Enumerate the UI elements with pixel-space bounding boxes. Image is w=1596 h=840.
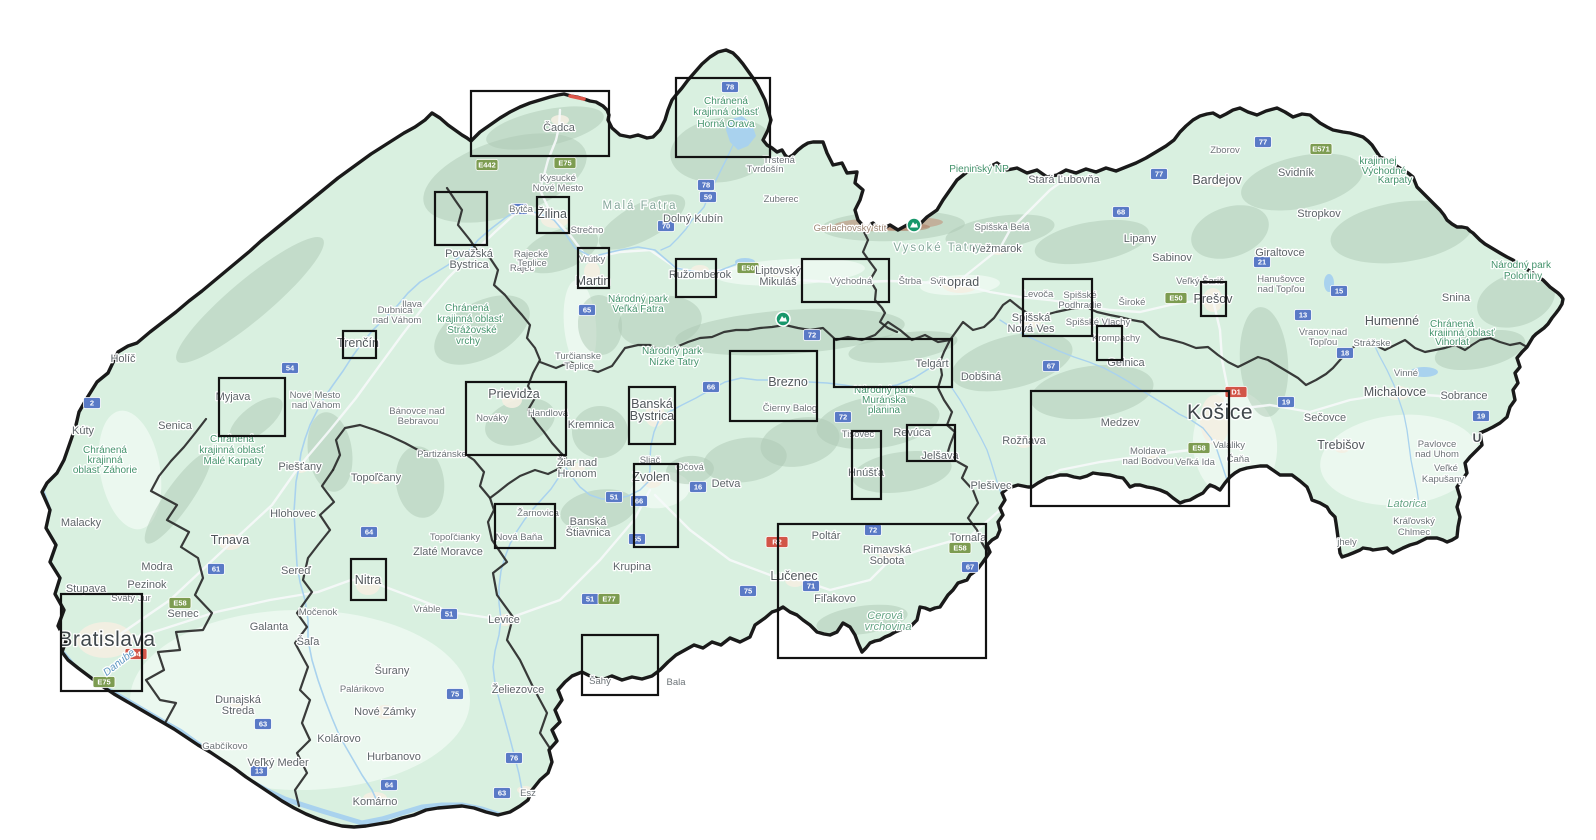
map-label: Senec: [167, 608, 199, 620]
map-label: Štiavnica: [566, 526, 612, 539]
map-label: Východná: [830, 276, 873, 287]
mountain-peak-icon: [907, 218, 921, 232]
svg-text:21: 21: [1258, 258, 1266, 267]
map-label: Plešivec: [971, 480, 1012, 492]
svg-text:51: 51: [610, 493, 618, 502]
map-label: Žilina: [537, 206, 567, 221]
map-label: Karpaty: [1378, 175, 1412, 186]
route-shield-64: 64: [381, 780, 398, 791]
map-label: Veľký Meder: [247, 757, 309, 769]
route-shield-18: 18: [1337, 348, 1354, 359]
map-label: Podhradie: [1058, 300, 1101, 311]
route-shield-77: 77: [1255, 137, 1272, 148]
route-shield-51: 51: [441, 609, 458, 620]
map-label: Malá Fatra: [603, 200, 678, 212]
map-label: Telgárt: [915, 358, 948, 370]
svg-text:19: 19: [1282, 398, 1290, 407]
map-label: Levice: [488, 614, 520, 626]
map-label: Rožňava: [1002, 435, 1046, 447]
map-label: Detva: [712, 478, 742, 490]
map-label: Partizánske: [417, 449, 467, 460]
route-shield-78: 78: [722, 82, 739, 93]
svg-text:63: 63: [498, 789, 506, 798]
mountain-peak-icon: [776, 312, 790, 326]
svg-text:67: 67: [1047, 362, 1055, 371]
map-label: Michalovce: [1364, 385, 1427, 399]
svg-text:E571: E571: [1312, 145, 1330, 154]
route-shield-63: 63: [255, 719, 272, 730]
map-label: Vihorlat: [1435, 337, 1469, 348]
map-label: Kolárovo: [317, 733, 360, 745]
map-label: Bardejov: [1192, 173, 1242, 187]
svg-text:71: 71: [807, 582, 815, 591]
svg-text:E50: E50: [1169, 294, 1182, 303]
svg-text:E58: E58: [953, 544, 966, 553]
route-shield-19: 19: [1278, 397, 1295, 408]
map-label: Hlohovec: [270, 508, 316, 520]
map-label: Sereď: [281, 565, 311, 577]
map-label: Snina: [1442, 292, 1471, 304]
route-shield-75: 75: [447, 689, 464, 700]
svg-text:15: 15: [1335, 287, 1343, 296]
route-shield-E75: E75: [93, 677, 115, 688]
route-shield-E50: E50: [1165, 293, 1187, 304]
map-label: Trebišov: [1317, 438, 1365, 452]
map-label: Čierny Balog: [763, 403, 817, 414]
map-label: Revúca: [893, 427, 931, 439]
map-label: Chránená: [704, 96, 748, 107]
map-label: Horná Orava: [697, 119, 755, 130]
map-label: Modra: [141, 561, 173, 573]
map-label: Tornaľa: [950, 532, 988, 544]
map-label: Lipany: [1124, 233, 1157, 245]
map-label: Bytča: [509, 204, 533, 215]
map-label: Močenok: [299, 607, 338, 618]
route-shield-59: 59: [700, 192, 717, 203]
map-label: Zlaté Moravce: [413, 546, 483, 558]
map-label: Pieninský NP: [949, 164, 1009, 175]
route-shield-61: 61: [208, 564, 225, 575]
map-label: Zvolen: [632, 470, 670, 484]
route-shield-66: 66: [703, 382, 720, 393]
svg-text:59: 59: [704, 193, 712, 202]
map-label: Čaňa: [1227, 454, 1250, 465]
map-label: Esz: [520, 788, 536, 799]
map-label: Krupina: [613, 561, 652, 573]
svg-text:64: 64: [385, 781, 394, 790]
map-label: nad Bodvou: [1123, 456, 1174, 467]
map-label: Národný park: [1491, 260, 1552, 271]
route-shield-76: 76: [506, 753, 523, 764]
map-label: Zborov: [1210, 145, 1240, 156]
map-label: Prešov: [1194, 292, 1234, 306]
route-shield-E571: E571: [1310, 144, 1332, 155]
map-label: krajinná oblasť: [199, 445, 265, 456]
route-shield-54: 54: [282, 363, 299, 374]
map-label: planina: [868, 405, 901, 416]
svg-text:72: 72: [869, 526, 877, 535]
map-label: Stará Ľubovňa: [1028, 174, 1100, 186]
map-label: Bala: [666, 677, 686, 688]
route-shield-2: 2: [84, 398, 101, 409]
map-label: Želiezovce: [492, 683, 545, 696]
map-label: Ružomberok: [669, 269, 732, 281]
svg-text:61: 61: [212, 565, 220, 574]
svg-text:E75: E75: [558, 159, 571, 168]
route-shield-E58: E58: [949, 543, 971, 554]
map-label: Strážovské: [447, 325, 497, 336]
route-shield-E442: E442: [476, 160, 498, 171]
svg-text:51: 51: [586, 595, 594, 604]
map-label: Topoľčianky: [430, 532, 481, 543]
map-label: Chlmec: [1398, 527, 1430, 538]
map-label: vrchovina: [864, 621, 911, 633]
route-shield-72: 72: [804, 330, 821, 341]
svg-text:E75: E75: [97, 678, 110, 687]
svg-text:66: 66: [635, 497, 643, 506]
svg-text:2: 2: [90, 399, 94, 408]
map-label: U: [1473, 431, 1482, 445]
map-label: Hurbanovo: [367, 751, 421, 763]
map-label: Giraltovce: [1255, 247, 1305, 259]
map-label: Bebravou: [398, 416, 439, 427]
map-label: Poltár: [812, 530, 841, 542]
svg-text:51: 51: [445, 610, 453, 619]
map-label: Dolný Kubín: [663, 213, 723, 225]
map-label: Žarnovica: [517, 508, 559, 519]
map-label: Dobšiná: [961, 371, 1002, 383]
svg-text:63: 63: [259, 720, 267, 729]
map-label: Svit: [930, 276, 946, 287]
map-label: krajinná oblasť: [693, 107, 759, 118]
map-label: Teplice: [517, 258, 547, 269]
map-label: Piešťany: [278, 461, 322, 473]
svg-text:13: 13: [1299, 311, 1307, 320]
map-label: Hnúšťa: [848, 467, 885, 479]
svg-text:68: 68: [1117, 208, 1125, 217]
map-label: Prievidza: [488, 387, 539, 401]
map-label: Nová Baňa: [495, 532, 543, 543]
svg-text:E58: E58: [173, 599, 186, 608]
route-shield-51: 51: [606, 492, 623, 503]
map-label: nad Topľou: [1258, 284, 1305, 295]
svg-text:66: 66: [707, 383, 715, 392]
map-label: Národný park: [642, 346, 703, 357]
map-label: Martin: [576, 274, 611, 288]
route-shield-64: 64: [361, 527, 378, 538]
map-label: jhely: [1336, 537, 1357, 548]
map-label: Komárno: [353, 796, 398, 808]
map-label: Latorica: [1387, 498, 1426, 510]
map-label: Spišská Belá: [975, 222, 1031, 233]
map-label: Očová: [676, 462, 704, 473]
route-shield-E77: E77: [598, 594, 620, 605]
map-label: Sečovce: [1304, 412, 1346, 424]
map-label: Palárikovo: [340, 684, 384, 695]
map-label: Brezno: [768, 375, 808, 389]
map-label: Kapušany: [1422, 474, 1465, 485]
map-label: Veľká Ida: [1175, 457, 1215, 468]
slovakia-overview-map[interactable]: 6161546426313757664637878597072667266555…: [0, 0, 1596, 840]
map-label: krajinná oblasť: [437, 314, 503, 325]
route-shield-16: 16: [690, 482, 707, 493]
svg-text:64: 64: [365, 528, 374, 537]
map-label: Vráble: [413, 604, 440, 615]
map-label: Stropkov: [1297, 208, 1341, 220]
route-shield-77: 77: [1151, 169, 1168, 180]
svg-text:76: 76: [510, 754, 518, 763]
map-label: Košice: [1187, 401, 1253, 424]
route-shield-72: 72: [835, 412, 852, 423]
map-label: Veľká Fatra: [612, 304, 664, 315]
map-label: Sabinov: [1152, 252, 1192, 264]
map-label: Nové Mesto: [533, 183, 584, 194]
map-label: oblasť Záhorie: [73, 465, 138, 476]
map-label: Topoľčany: [351, 472, 402, 484]
map-label: Šaľa: [297, 635, 321, 648]
svg-text:E442: E442: [478, 161, 496, 170]
map-label: Vysoké Tatry: [893, 242, 982, 254]
map-label: Vinné: [1394, 368, 1418, 379]
route-shield-51: 51: [582, 594, 599, 605]
map-label: Levoča: [1023, 289, 1054, 300]
map-label: Topľou: [1309, 337, 1338, 348]
map-label: Kremnica: [568, 419, 615, 431]
map-label: Krompachy: [1092, 333, 1140, 344]
map-label: Bystrica: [630, 409, 675, 423]
map-label: Medzev: [1101, 417, 1140, 429]
route-shield-68: 68: [1113, 207, 1130, 218]
route-shield-E58: E58: [1188, 443, 1210, 454]
map-label: Šahy: [589, 676, 611, 687]
map-label: Myjava: [216, 391, 252, 403]
map-label: Svidník: [1278, 167, 1315, 179]
map-label: Holíč: [110, 353, 136, 365]
map-label: Sobota: [870, 555, 906, 567]
svg-text:75: 75: [451, 690, 459, 699]
map-label: Humenné: [1365, 314, 1419, 328]
map-label: Senica: [158, 420, 193, 432]
map-label: Strážske: [1354, 338, 1391, 349]
svg-text:19: 19: [1477, 412, 1485, 421]
map-label: Nové Zámky: [354, 706, 416, 718]
route-shield-65: 65: [579, 305, 596, 316]
map-label: Hronom: [557, 468, 596, 480]
map-label: Čadca: [543, 121, 576, 134]
map-label: Sobrance: [1440, 390, 1487, 402]
map-label: vrchy: [456, 336, 480, 347]
map-label: Zuberec: [764, 194, 799, 205]
map-label: Streda: [222, 705, 255, 717]
svg-text:E58: E58: [1192, 444, 1205, 453]
svg-text:78: 78: [702, 181, 710, 190]
svg-text:D1: D1: [1231, 388, 1241, 397]
route-shield-67: 67: [1043, 361, 1060, 372]
map-label: Nováky: [476, 413, 508, 424]
map-label: Šurany: [375, 664, 410, 677]
svg-text:75: 75: [744, 587, 752, 596]
map-label: Mikuláš: [759, 276, 797, 288]
route-shield-13: 13: [1295, 310, 1312, 321]
svg-text:E77: E77: [602, 595, 615, 604]
map-label: Gabčíkovo: [202, 741, 247, 752]
map-canvas[interactable]: 6161546426313757664637878597072667266555…: [0, 0, 1596, 840]
svg-text:54: 54: [286, 364, 295, 373]
route-shield-78: 78: [698, 180, 715, 191]
map-label: nad Váhom: [373, 315, 422, 326]
map-label: Široké: [1119, 297, 1146, 308]
route-shield-55: 55: [629, 534, 646, 545]
map-label: Galanta: [250, 621, 289, 633]
map-label: Veľké: [1434, 463, 1458, 474]
svg-text:72: 72: [839, 413, 847, 422]
map-label: nad Váhom: [292, 400, 341, 411]
svg-text:16: 16: [694, 483, 702, 492]
map-label: Nízke Tatry: [649, 357, 699, 368]
route-shield-19: 19: [1473, 411, 1490, 422]
svg-text:67: 67: [966, 563, 974, 572]
route-shield-15: 15: [1331, 286, 1348, 297]
map-label: Kúty: [72, 425, 95, 437]
map-label: Malacky: [61, 517, 102, 529]
map-label: Kráľovský: [1393, 516, 1435, 527]
map-label: Vrútky: [579, 254, 606, 265]
route-shield-67: 67: [962, 562, 979, 573]
svg-text:77: 77: [1155, 170, 1163, 179]
svg-text:E50: E50: [741, 264, 754, 273]
map-label: Strečno: [571, 225, 604, 236]
map-label: Bystrica: [449, 259, 489, 271]
map-label: Štrba: [899, 276, 922, 287]
map-label: Poloniny: [1504, 271, 1542, 282]
map-label: Nová Ves: [1007, 323, 1055, 335]
svg-text:78: 78: [726, 83, 734, 92]
map-label: Fiľakovo: [814, 593, 856, 605]
route-shield-72: 72: [865, 525, 882, 536]
map-label: Gelnica: [1107, 357, 1145, 369]
map-label: Chránená: [445, 303, 489, 314]
map-label: nad Uhom: [1415, 449, 1459, 460]
map-label: Pezinok: [127, 579, 167, 591]
route-shield-E75: E75: [554, 158, 576, 169]
terrain-shading: [572, 406, 628, 458]
svg-text:72: 72: [808, 331, 816, 340]
svg-text:18: 18: [1341, 349, 1349, 358]
route-shield-E58: E58: [169, 598, 191, 609]
svg-text:65: 65: [583, 306, 591, 315]
route-shield-63: 63: [494, 788, 511, 799]
map-label: Trnava: [211, 533, 249, 547]
svg-text:77: 77: [1259, 138, 1267, 147]
map-label: Handlová: [528, 408, 569, 419]
map-label: Nitra: [355, 573, 381, 587]
map-label: Teplice: [564, 361, 594, 372]
map-label: Malé Karpaty: [204, 456, 263, 467]
map-label: Tvrdošín: [747, 164, 784, 175]
route-shield-75: 75: [740, 586, 757, 597]
map-label: Gerlachovský štít: [814, 223, 887, 234]
